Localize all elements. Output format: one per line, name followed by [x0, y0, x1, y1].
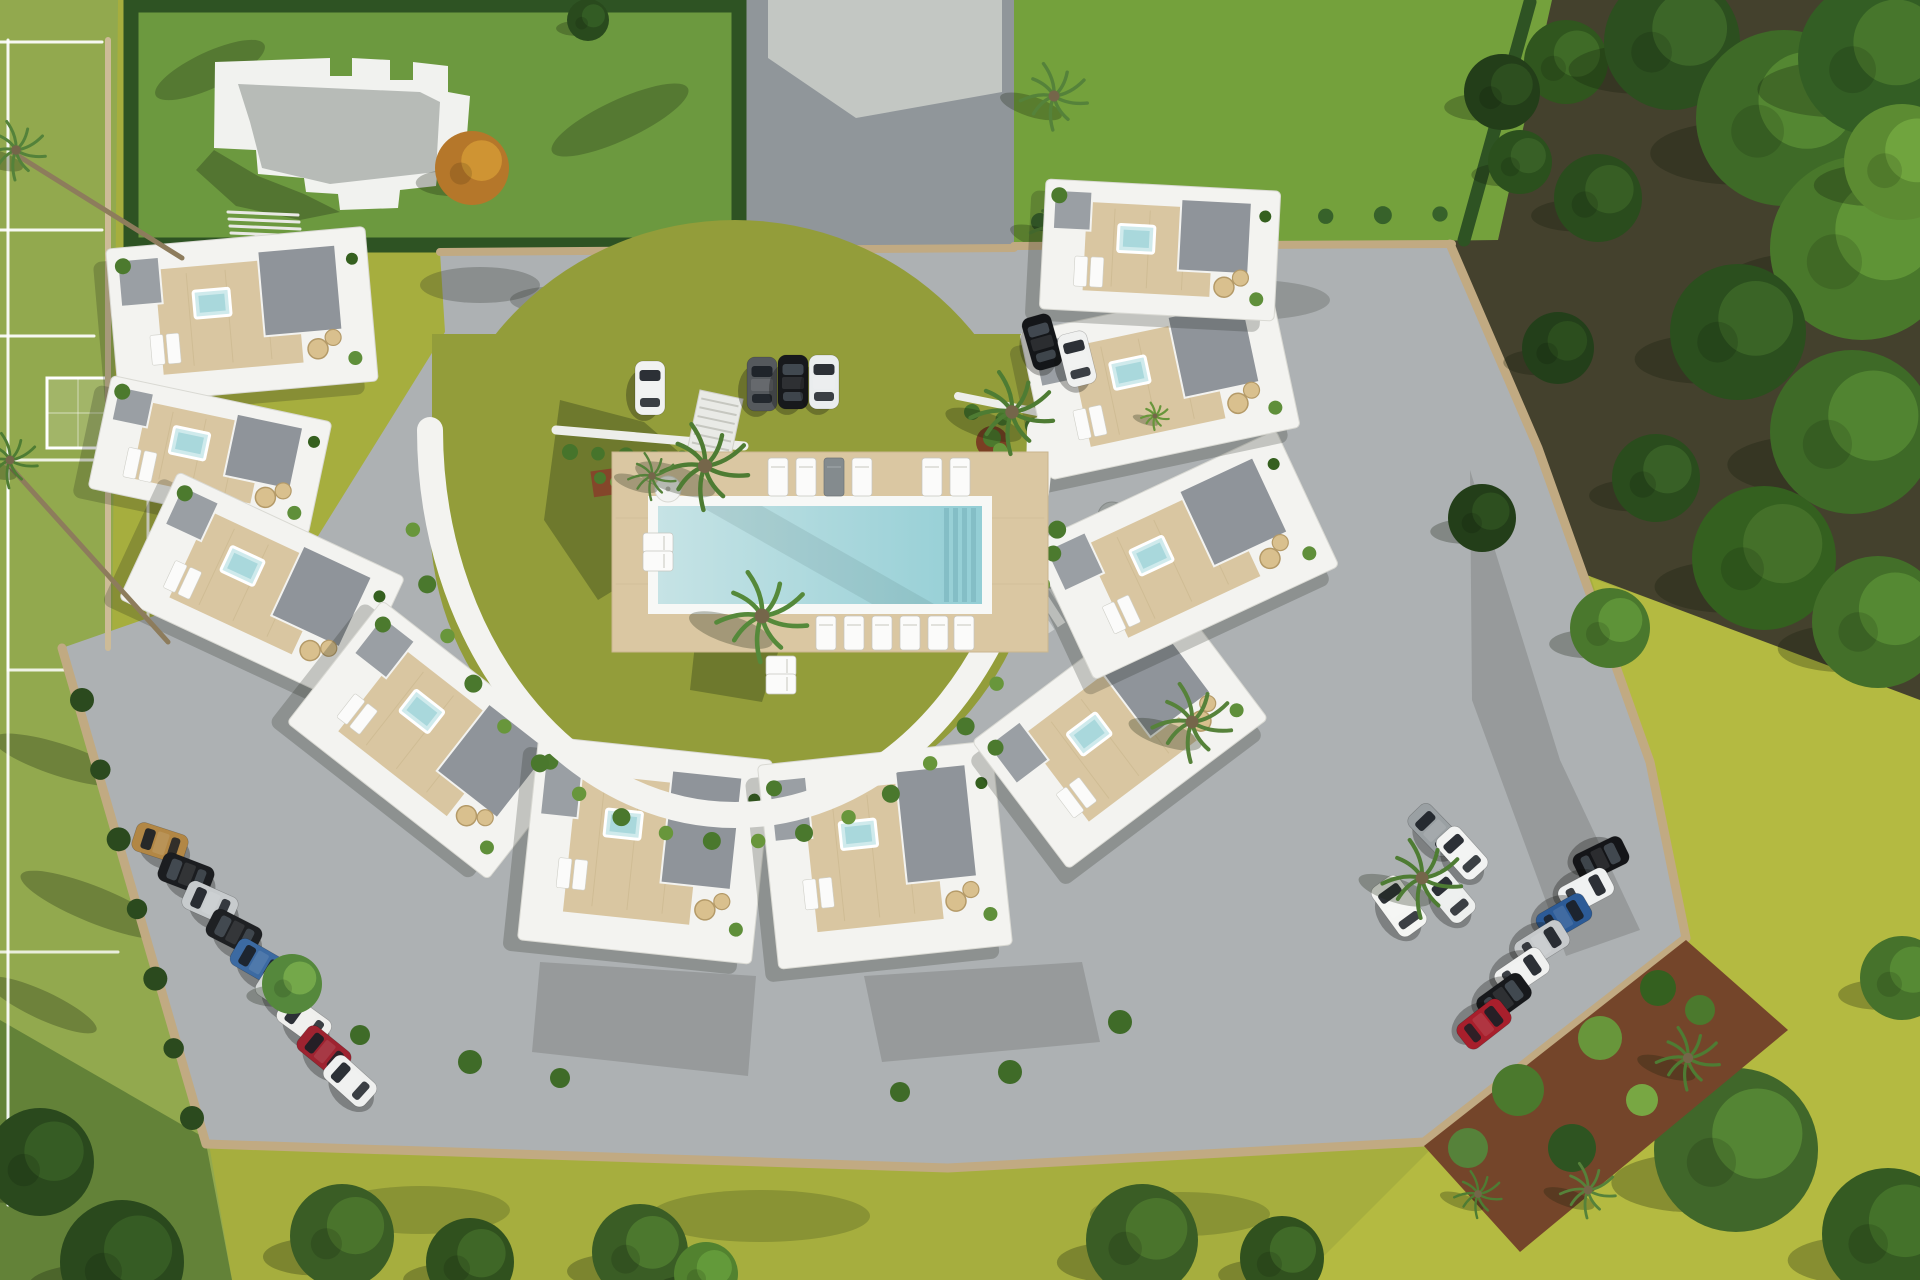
planter-shrub	[612, 808, 630, 826]
tree-texture	[1848, 1224, 1888, 1264]
sun-lounger	[766, 656, 796, 676]
palm-crown	[1186, 716, 1199, 729]
planter-shrub	[989, 676, 1003, 690]
lounger-body	[844, 616, 864, 650]
shrub	[1492, 1064, 1544, 1116]
sun-lounger	[922, 458, 942, 496]
roof-lounger	[1089, 257, 1104, 288]
sun-lounger	[766, 674, 796, 694]
gravel-roof	[224, 414, 303, 490]
shrub	[1448, 1128, 1488, 1168]
sun-lounger	[643, 551, 673, 571]
planter-shrub	[418, 575, 436, 593]
sun-lounger	[816, 616, 836, 650]
tree-texture	[611, 1245, 640, 1274]
roof-lounger	[803, 879, 819, 910]
palm-crown	[1153, 414, 1158, 419]
palm-crown	[1683, 1053, 1693, 1063]
car-rear-window	[752, 394, 772, 403]
bush	[70, 688, 94, 712]
jacuzzi-water	[1123, 230, 1150, 248]
sun-lounger	[950, 458, 970, 496]
tree-texture	[1586, 622, 1610, 646]
tree-texture	[1630, 471, 1656, 497]
sun-lounger	[844, 616, 864, 650]
pool-steps	[971, 508, 976, 602]
lounger-body	[768, 458, 788, 496]
car-windshield	[783, 364, 804, 375]
bush	[127, 899, 147, 919]
roof-lounger	[818, 877, 834, 908]
tree-texture	[1108, 1232, 1142, 1266]
car-roof	[813, 377, 835, 389]
tree-texture	[1257, 1252, 1282, 1277]
shrub	[1548, 1124, 1596, 1172]
tree-texture	[311, 1228, 342, 1259]
tree-texture	[1479, 86, 1502, 109]
roof-daybed	[324, 329, 341, 346]
car-windshield	[752, 366, 773, 377]
palm-crown	[11, 145, 21, 155]
car-rear-window	[640, 398, 660, 407]
bush	[350, 1025, 370, 1045]
roof-lounger	[1073, 256, 1088, 287]
gravel-roof	[1178, 199, 1252, 274]
lounger-body	[872, 616, 892, 650]
gravel-roof	[660, 770, 742, 890]
sun-lounger	[872, 616, 892, 650]
palm-crown	[755, 609, 770, 624]
planter-shrub	[464, 675, 482, 693]
sun-lounger	[643, 533, 673, 553]
jacuzzi-water	[845, 824, 873, 844]
roof-daybed	[1232, 270, 1249, 287]
shrub	[1432, 206, 1447, 221]
palm-crown	[1049, 91, 1060, 102]
screenshot-root	[0, 0, 1920, 1280]
tree-texture	[575, 17, 588, 30]
palm-crown	[1416, 872, 1429, 885]
bush	[107, 827, 131, 851]
car-windshield	[640, 370, 661, 381]
lounger-body	[922, 458, 942, 496]
tree-texture	[450, 162, 472, 184]
tree-texture	[1731, 105, 1784, 158]
tree-texture	[1462, 513, 1482, 533]
planter-shrub	[703, 832, 721, 850]
planter-shrub	[497, 719, 511, 733]
planter-shrub	[562, 444, 578, 460]
tree-texture	[8, 1154, 40, 1186]
bush	[998, 1060, 1022, 1084]
sun-lounger	[852, 458, 872, 496]
tree-texture	[1829, 46, 1876, 93]
sun-lounger	[928, 616, 948, 650]
palm-crown	[648, 472, 656, 480]
pool-steps	[944, 508, 949, 602]
planter-shrub	[591, 447, 605, 461]
gravel-roof	[257, 245, 342, 337]
palm-crown	[1584, 1186, 1593, 1195]
bush	[163, 1038, 183, 1058]
lounger-body	[928, 616, 948, 650]
pool-steps	[962, 508, 967, 602]
bush	[143, 967, 167, 991]
tree-texture	[1721, 547, 1764, 590]
tree-texture	[1501, 157, 1520, 176]
shrub	[1374, 206, 1392, 224]
planter-shrub	[882, 785, 900, 803]
roof-lounger	[556, 857, 572, 888]
planter-shrub	[957, 717, 975, 735]
tree-texture	[1631, 32, 1672, 73]
tree-texture	[1536, 343, 1558, 365]
lounger-body	[766, 674, 796, 694]
lounger-body	[852, 458, 872, 496]
planter-shrub	[531, 754, 549, 772]
car-roof	[639, 383, 661, 395]
bush	[1108, 1010, 1132, 1034]
car-windshield	[814, 364, 835, 375]
tree-texture	[1877, 972, 1902, 997]
roof-lounger	[166, 333, 182, 364]
sun-lounger	[824, 458, 844, 496]
lounger-body	[796, 458, 816, 496]
roof-lounger	[572, 859, 588, 890]
planter-shrub	[1048, 521, 1066, 539]
planter-shrub	[440, 629, 454, 643]
planter-shrub	[751, 834, 765, 848]
shrub	[1685, 995, 1715, 1025]
shrub	[1626, 1084, 1658, 1116]
planter-shrub	[572, 787, 586, 801]
shrub	[1578, 1016, 1622, 1060]
planter-shrub	[406, 522, 420, 536]
tree-texture	[1807, 234, 1862, 289]
car-rear-window	[814, 392, 834, 401]
tree-texture	[1697, 322, 1738, 363]
palm-crown	[1005, 405, 1018, 418]
car-rear-window	[783, 392, 803, 401]
tree-texture	[1838, 612, 1878, 652]
roof-daybed	[1213, 277, 1234, 298]
tree-texture	[1687, 1138, 1736, 1187]
tree-texture	[1803, 420, 1852, 469]
shrub	[1640, 970, 1676, 1006]
roof-lounger	[150, 334, 166, 365]
sun-lounger	[768, 458, 788, 496]
planter-shrub	[923, 756, 937, 770]
bush	[550, 1068, 570, 1088]
palm-crown	[6, 456, 15, 465]
lounger-body	[950, 458, 970, 496]
tree-texture	[274, 980, 292, 998]
sun-lounger	[900, 616, 920, 650]
aerial-site-plan	[0, 0, 1920, 1280]
lounger-body	[824, 458, 844, 496]
planter-shrub	[795, 824, 813, 842]
building-unit	[1025, 178, 1281, 333]
sun-lounger	[954, 616, 974, 650]
tree-texture	[1867, 153, 1902, 188]
lounger-body	[643, 551, 673, 571]
lounger-body	[816, 616, 836, 650]
villa-roof	[238, 84, 440, 184]
shrub	[1318, 209, 1333, 224]
jacuzzi-water	[198, 294, 225, 313]
bush	[458, 1050, 482, 1074]
palm-crown	[698, 459, 712, 473]
planter-shrub	[659, 826, 673, 840]
bush	[180, 1106, 204, 1130]
planter-shrub	[841, 810, 855, 824]
bush	[90, 759, 110, 779]
shrub	[594, 472, 606, 484]
tree-texture	[1572, 191, 1598, 217]
palm-crown	[1474, 1190, 1482, 1198]
bush	[890, 1082, 910, 1102]
lounger-body	[900, 616, 920, 650]
tree-texture	[1541, 56, 1566, 81]
lounger-body	[954, 616, 974, 650]
pool-steps	[953, 508, 958, 602]
sun-lounger	[796, 458, 816, 496]
lounger-body	[643, 533, 673, 553]
gravel-roof	[895, 764, 977, 884]
lounger-body	[766, 656, 796, 676]
